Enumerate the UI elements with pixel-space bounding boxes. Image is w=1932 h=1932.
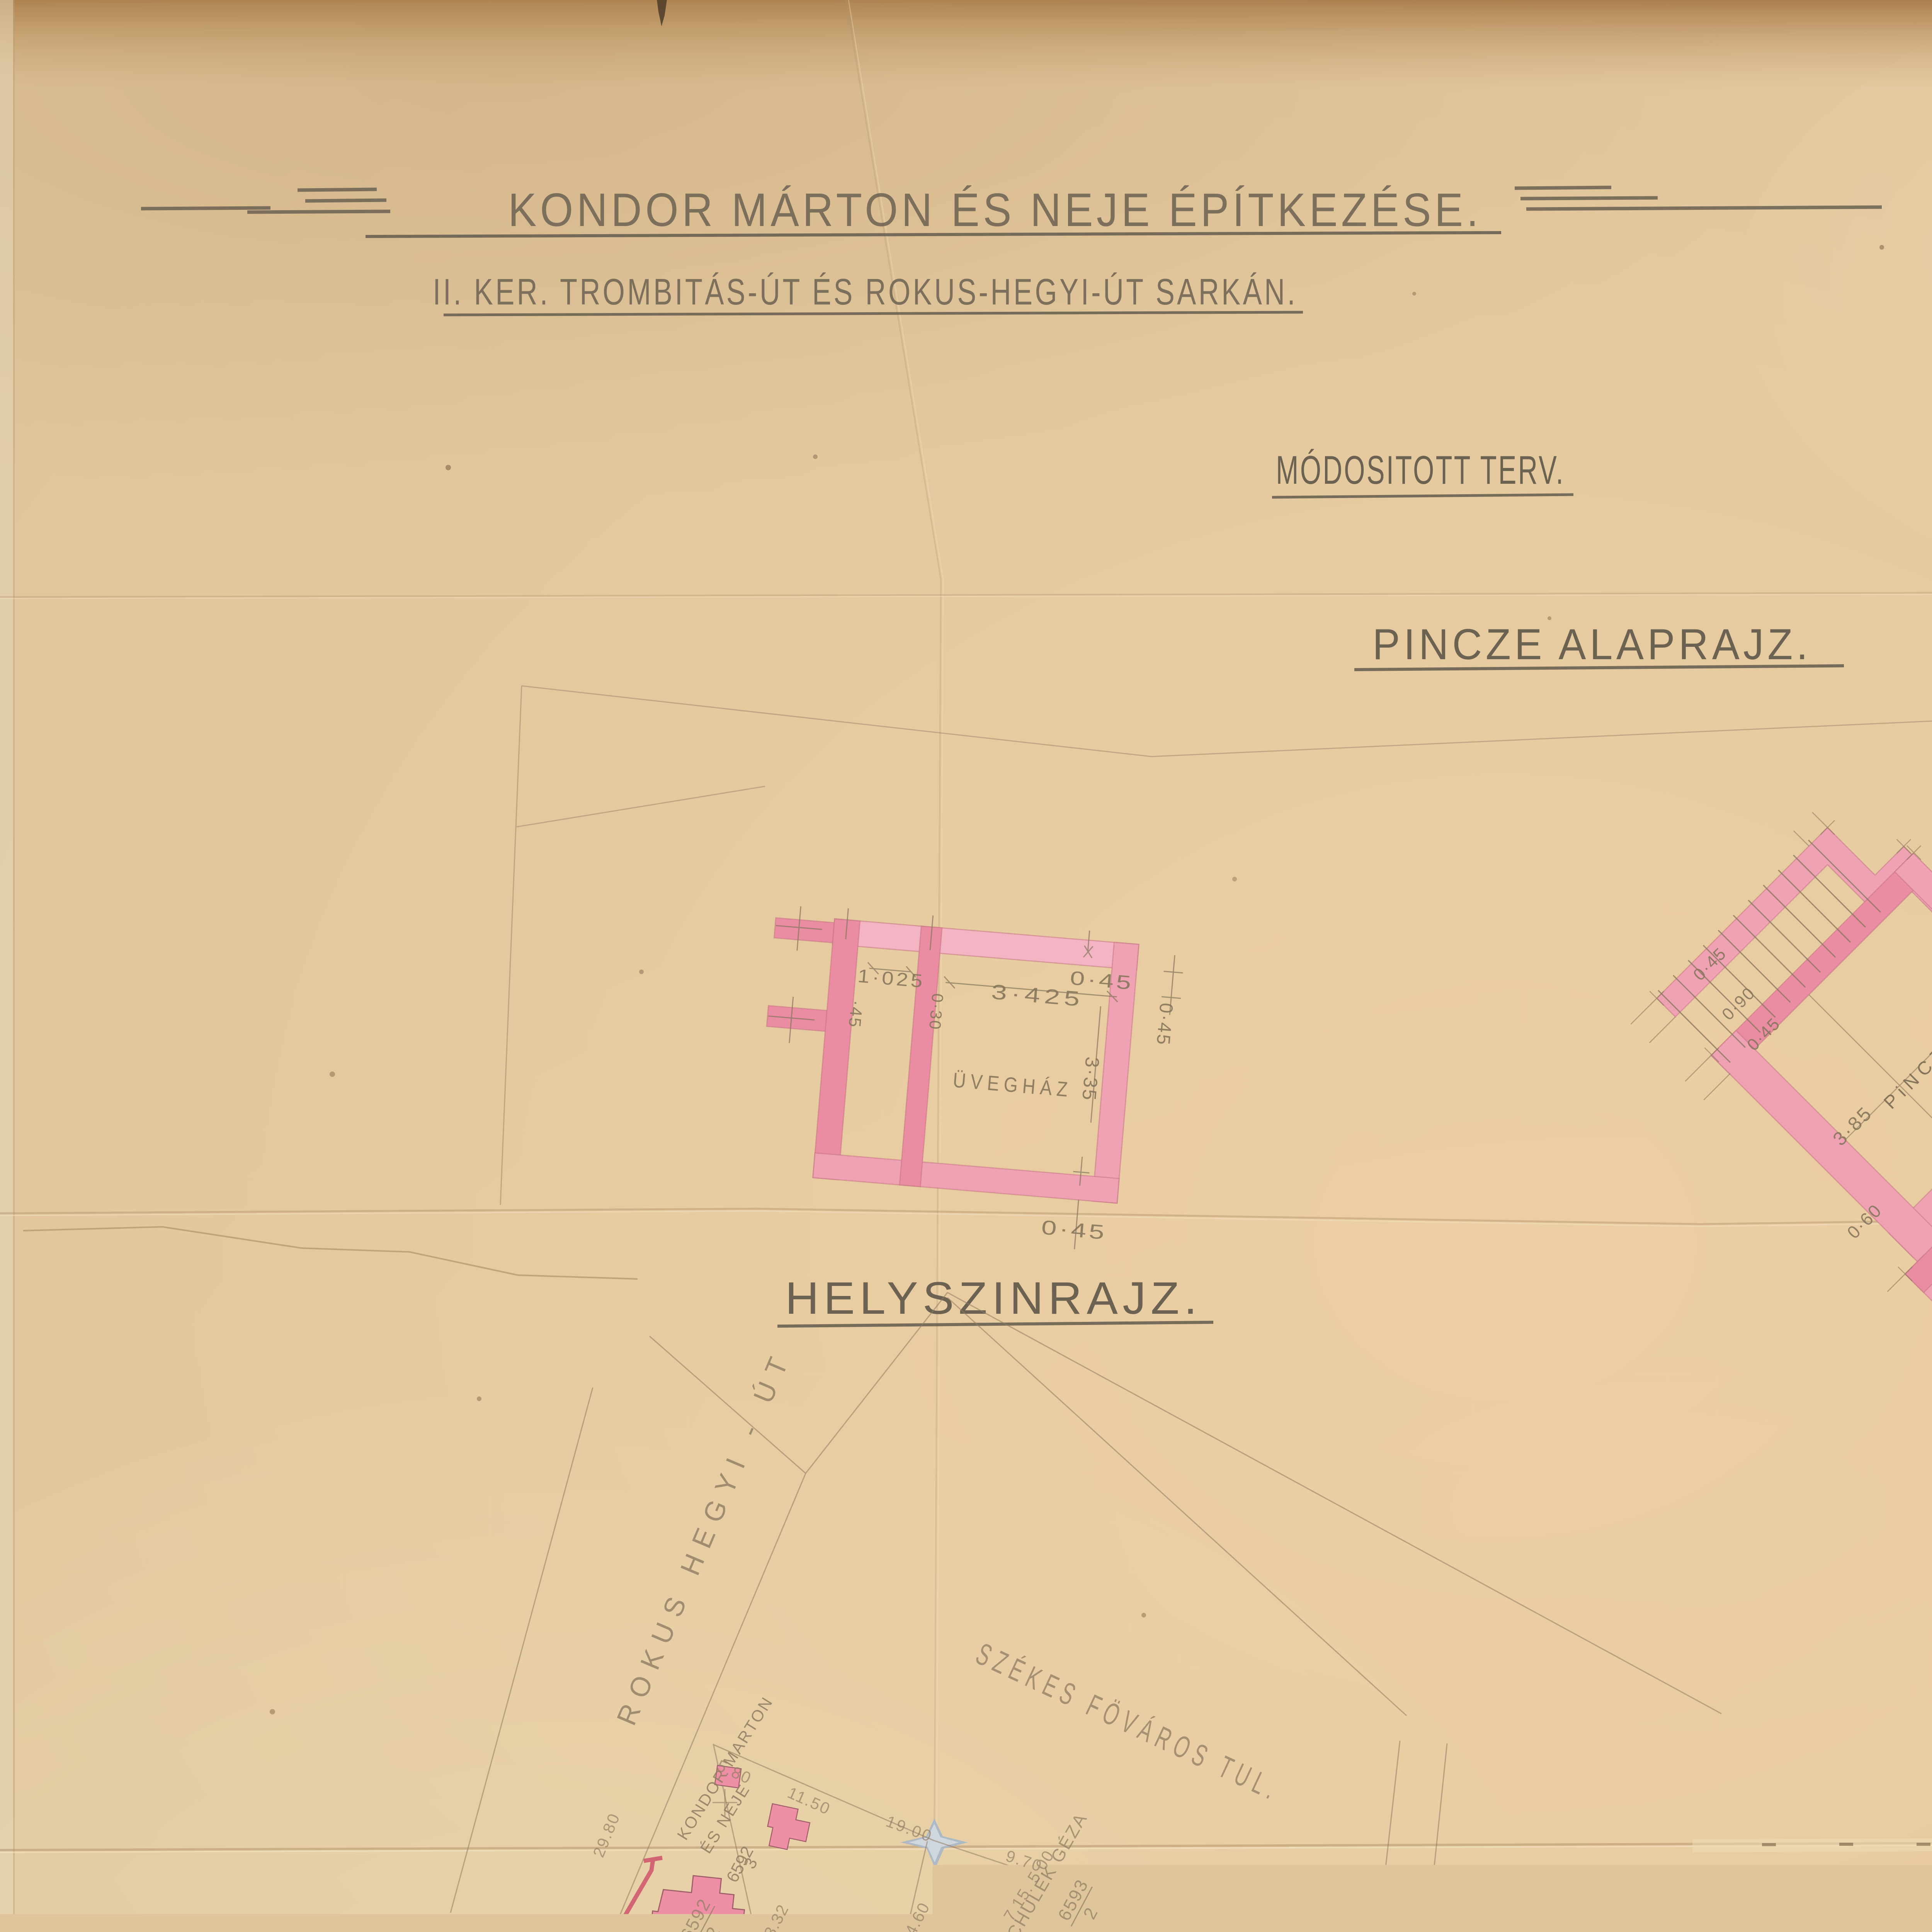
svg-text:3·35: 3·35 — [1078, 1056, 1104, 1102]
svg-text:KONDOR MÁRTON ÉS NEJE ÉPÍTKEZÉ: KONDOR MÁRTON ÉS NEJE ÉPÍTKEZÉSE. — [508, 184, 1482, 236]
svg-text:MÓDOSITOTT TERV.: MÓDOSITOTT TERV. — [1276, 448, 1565, 493]
svg-text:PINCZE ALAPRAJZ.: PINCZE ALAPRAJZ. — [1372, 620, 1811, 668]
svg-text:HELYSZINRAJZ.: HELYSZINRAJZ. — [785, 1273, 1202, 1324]
svg-text:II. KER. TROMBITÁS-ÚT ÉS ROKUS: II. KER. TROMBITÁS-ÚT ÉS ROKUS-HEGYI-ÚT … — [433, 271, 1298, 313]
svg-text:·45: ·45 — [845, 999, 866, 1029]
svg-text:0·45: 0·45 — [1153, 1002, 1177, 1047]
svg-text:0·30: 0·30 — [926, 993, 947, 1031]
